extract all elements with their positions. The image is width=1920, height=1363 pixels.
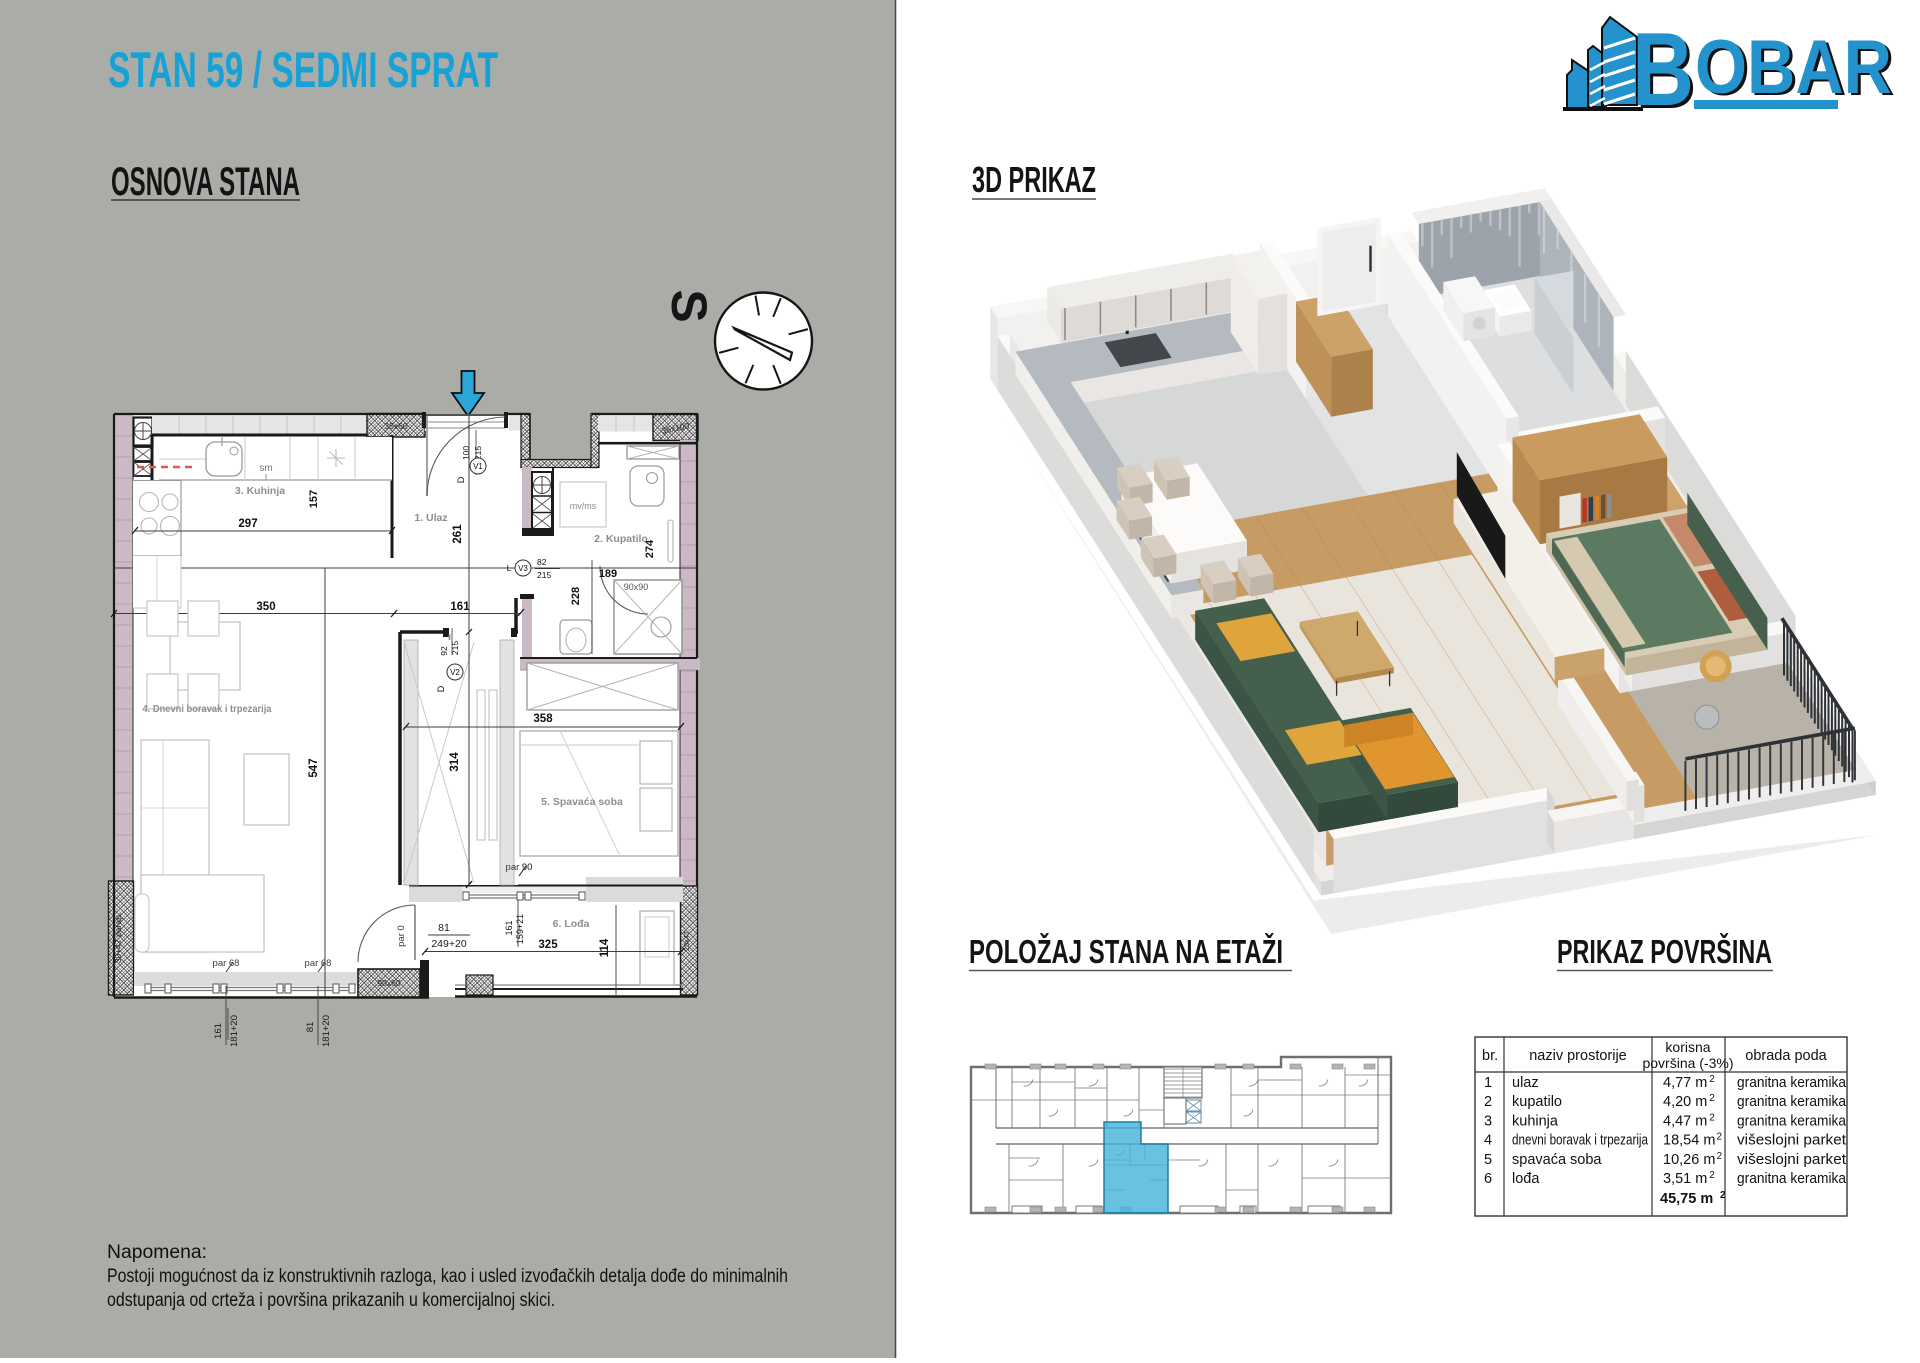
svg-text:ulaz: ulaz (1512, 1075, 1539, 1091)
svg-text:18,54 m: 18,54 m (1663, 1133, 1715, 1149)
svg-text:kuhinja: kuhinja (1512, 1113, 1559, 1129)
svg-text:V2: V2 (450, 668, 460, 677)
svg-text:B: B (1632, 12, 1694, 128)
svg-text:1. Ulaz: 1. Ulaz (414, 512, 447, 524)
svg-text:površina (-3%): površina (-3%) (1642, 1055, 1733, 1071)
svg-text:D: D (456, 476, 466, 483)
svg-text:2: 2 (1717, 1132, 1723, 1143)
svg-text:161: 161 (213, 1023, 224, 1039)
svg-text:mv/ms: mv/ms (570, 501, 597, 511)
svg-text:OBAR: OBAR (1695, 25, 1892, 110)
svg-text:obrada poda: obrada poda (1745, 1048, 1827, 1064)
svg-text:157: 157 (308, 490, 320, 508)
svg-text:2: 2 (1484, 1094, 1492, 1110)
svg-text:325: 325 (538, 939, 558, 951)
svg-text:215: 215 (450, 641, 460, 655)
svg-text:V1: V1 (473, 462, 483, 471)
svg-text:2: 2 (1709, 1093, 1715, 1104)
svg-text:sm: sm (259, 463, 272, 474)
svg-text:odstupanja od crteža i površin: odstupanja od crteža i površina prikazan… (107, 1290, 555, 1311)
svg-text:granitna keramika: granitna keramika (1737, 1171, 1847, 1187)
svg-text:4. Dnevni boravak i trpezarija: 4. Dnevni boravak i trpezarija (143, 703, 272, 715)
svg-text:90x90: 90x90 (624, 582, 649, 592)
svg-text:350: 350 (256, 601, 275, 613)
svg-text:granitna keramika: granitna keramika (1737, 1113, 1847, 1129)
svg-text:OSNOVA STANA: OSNOVA STANA (111, 160, 300, 204)
svg-text:6: 6 (1484, 1171, 1492, 1187)
svg-text:81: 81 (438, 922, 450, 934)
svg-text:POLOŽAJ STANA NA ETAŽI: POLOŽAJ STANA NA ETAŽI (969, 933, 1283, 970)
svg-text:4,77 m: 4,77 m (1663, 1075, 1707, 1091)
svg-text:4: 4 (1484, 1133, 1492, 1149)
svg-text:82: 82 (537, 557, 547, 567)
svg-text:1: 1 (1484, 1075, 1492, 1091)
svg-text:par 68: par 68 (305, 958, 332, 969)
svg-text:249+20: 249+20 (431, 938, 466, 950)
svg-text:višeslojni parket: višeslojni parket (1737, 1152, 1846, 1168)
svg-text:274: 274 (644, 539, 656, 558)
svg-text:4,20 m: 4,20 m (1663, 1094, 1707, 1110)
svg-text:5. Spavaća soba: 5. Spavaća soba (541, 796, 623, 808)
svg-text:2: 2 (1709, 1170, 1715, 1181)
svg-text:2. Kupatilo: 2. Kupatilo (594, 533, 648, 545)
svg-text:Napomena:: Napomena: (107, 1242, 207, 1263)
svg-text:kupatilo: kupatilo (1512, 1094, 1562, 1110)
svg-text:297: 297 (238, 518, 257, 530)
svg-text:V3: V3 (518, 564, 528, 573)
svg-text:2: 2 (1709, 1112, 1715, 1123)
svg-text:3: 3 (1484, 1113, 1492, 1129)
svg-text:3D PRIKAZ: 3D PRIKAZ (972, 159, 1096, 200)
svg-text:granitna keramika: granitna keramika (1737, 1094, 1847, 1110)
svg-text:3,51 m: 3,51 m (1663, 1171, 1707, 1187)
svg-text:181+20: 181+20 (321, 1015, 332, 1047)
svg-text:189: 189 (599, 568, 617, 580)
svg-text:159+21: 159+21 (515, 914, 525, 944)
svg-text:90x60: 90x60 (377, 978, 400, 988)
svg-text:višeslojni parket: višeslojni parket (1737, 1133, 1846, 1149)
svg-text:547: 547 (308, 758, 320, 777)
svg-text:2: 2 (1709, 1074, 1715, 1085)
svg-text:92: 92 (439, 646, 449, 656)
svg-text:5: 5 (1484, 1152, 1492, 1168)
svg-text:lođa: lođa (1512, 1171, 1540, 1187)
svg-text:PRIKAZ POVRŠINA: PRIKAZ POVRŠINA (1557, 932, 1772, 970)
svg-text:br.: br. (1482, 1048, 1498, 1064)
svg-text:spavaća soba: spavaća soba (1512, 1152, 1602, 1168)
svg-text:10,26 m: 10,26 m (1663, 1152, 1715, 1168)
svg-text:261: 261 (452, 524, 464, 544)
svg-text:naziv prostorije: naziv prostorije (1529, 1048, 1627, 1064)
svg-text:STAN 59 / SEDMI SPRAT: STAN 59 / SEDMI SPRAT (108, 42, 498, 98)
svg-text:D: D (436, 685, 446, 692)
svg-text:81: 81 (305, 1022, 316, 1033)
svg-text:4,47 m: 4,47 m (1663, 1113, 1707, 1129)
svg-text:228: 228 (570, 587, 582, 605)
svg-text:161: 161 (450, 601, 470, 613)
svg-text:161: 161 (504, 920, 514, 935)
svg-text:S: S (661, 289, 717, 322)
svg-text:6. Lođa: 6. Lođa (553, 918, 590, 930)
svg-text:par 68: par 68 (213, 958, 240, 969)
svg-text:granitna keramika: granitna keramika (1737, 1075, 1847, 1091)
svg-text:dnevni boravak i trpezarija: dnevni boravak i trpezarija (1512, 1133, 1649, 1149)
svg-text:3. Kuhinja: 3. Kuhinja (235, 485, 285, 497)
svg-text:Postoji mogućnost da iz konstr: Postoji mogućnost da iz konstruktivnih r… (107, 1266, 788, 1287)
svg-text:314: 314 (449, 752, 461, 772)
svg-text:par 0: par 0 (396, 925, 407, 947)
svg-text:35x60: 35x60 (384, 421, 407, 431)
svg-text:par 90: par 90 (506, 862, 533, 873)
svg-text:215: 215 (537, 570, 551, 580)
svg-text:korisna: korisna (1665, 1039, 1710, 1055)
svg-text:181+20: 181+20 (229, 1015, 240, 1047)
svg-text:358: 358 (533, 713, 553, 725)
svg-text:L: L (507, 563, 512, 573)
svg-text:2: 2 (1720, 1190, 1726, 1201)
svg-text:114: 114 (599, 938, 611, 957)
svg-text:45,75 m: 45,75 m (1660, 1191, 1713, 1207)
svg-text:2: 2 (1717, 1151, 1723, 1162)
